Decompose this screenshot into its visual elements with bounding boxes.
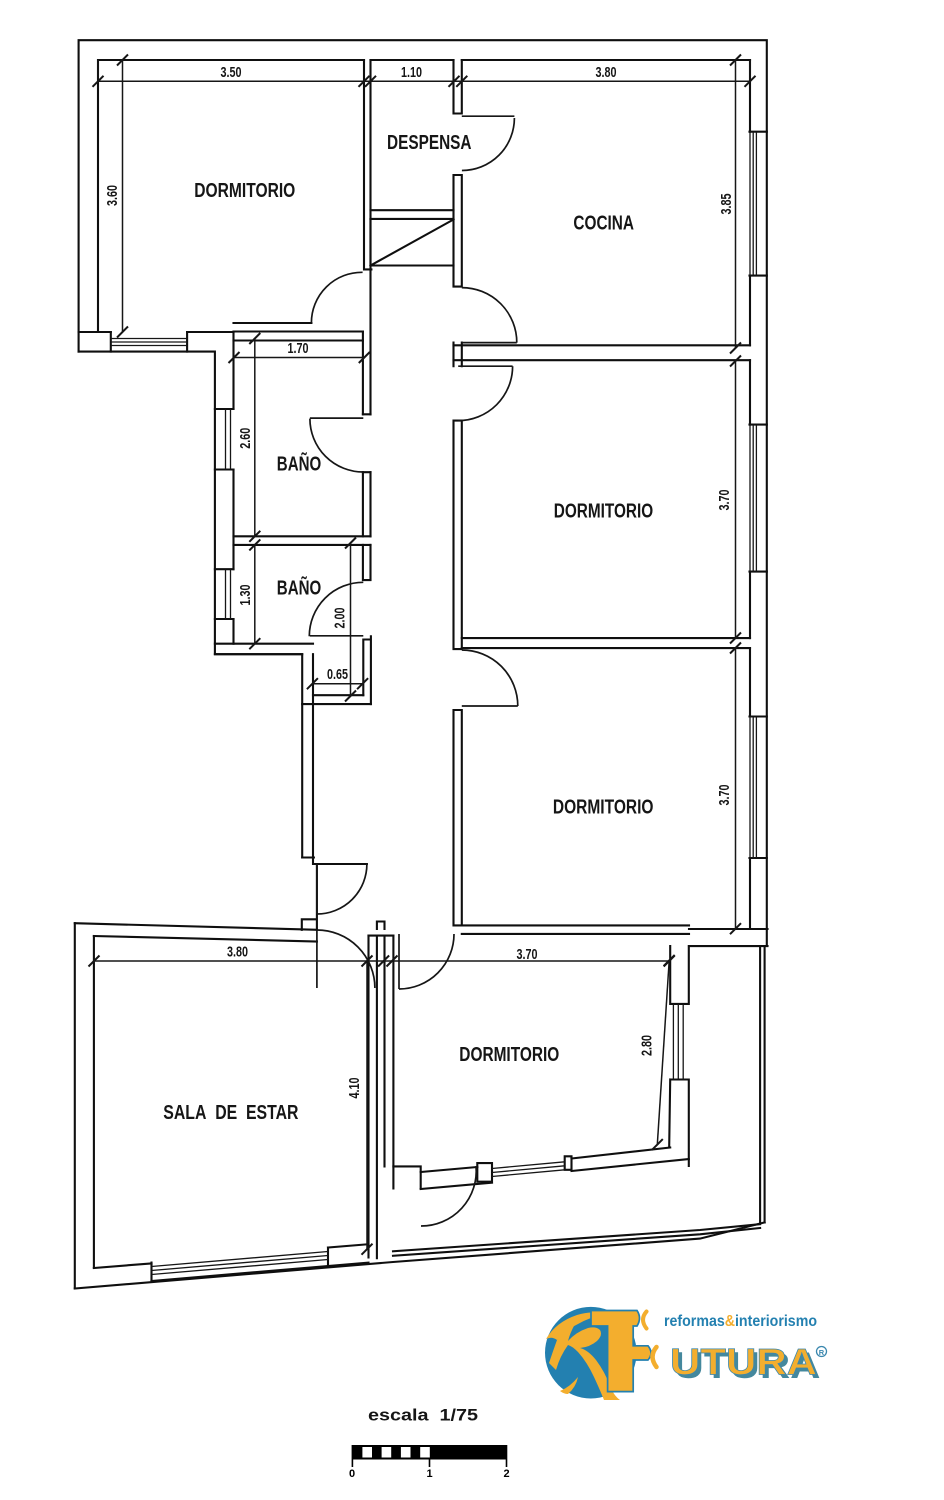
- svg-text:BAÑO: BAÑO: [277, 453, 321, 476]
- svg-text:3.50: 3.50: [221, 65, 242, 81]
- svg-text:SALA DE ESTAR: SALA DE ESTAR: [163, 1101, 298, 1124]
- svg-text:3.70: 3.70: [717, 785, 733, 806]
- svg-text:0.65: 0.65: [327, 667, 348, 683]
- svg-text:reformas&interiorismo: reformas&interiorismo: [664, 1313, 817, 1330]
- svg-text:3.85: 3.85: [719, 194, 735, 215]
- svg-text:COCINA: COCINA: [573, 212, 634, 235]
- svg-text:3.80: 3.80: [227, 945, 248, 961]
- svg-text:3.80: 3.80: [596, 65, 617, 81]
- svg-text:2.80: 2.80: [640, 1035, 656, 1056]
- svg-text:1: 1: [427, 1468, 433, 1480]
- svg-text:3.70: 3.70: [517, 947, 538, 963]
- svg-text:UTURA: UTURA: [670, 1342, 817, 1383]
- svg-text:0: 0: [349, 1468, 355, 1480]
- svg-text:4.10: 4.10: [347, 1078, 363, 1099]
- svg-text:3.70: 3.70: [717, 490, 733, 511]
- svg-text:DORMITORIO: DORMITORIO: [194, 179, 295, 202]
- svg-text:BAÑO: BAÑO: [277, 577, 321, 600]
- svg-text:1.30: 1.30: [238, 585, 254, 606]
- svg-text:3.60: 3.60: [105, 185, 121, 206]
- svg-text:2.60: 2.60: [238, 428, 254, 449]
- svg-text:DORMITORIO: DORMITORIO: [459, 1043, 559, 1066]
- svg-text:2: 2: [504, 1468, 510, 1480]
- svg-text:escala 1/75: escala 1/75: [368, 1407, 478, 1425]
- svg-text:R: R: [819, 1348, 825, 1357]
- svg-text:DORMITORIO: DORMITORIO: [554, 499, 653, 522]
- svg-text:1.10: 1.10: [401, 65, 422, 81]
- svg-text:2.00: 2.00: [333, 608, 349, 629]
- svg-text:1.70: 1.70: [288, 341, 309, 357]
- svg-text:DESPENSA: DESPENSA: [387, 131, 472, 154]
- svg-text:DORMITORIO: DORMITORIO: [553, 796, 654, 819]
